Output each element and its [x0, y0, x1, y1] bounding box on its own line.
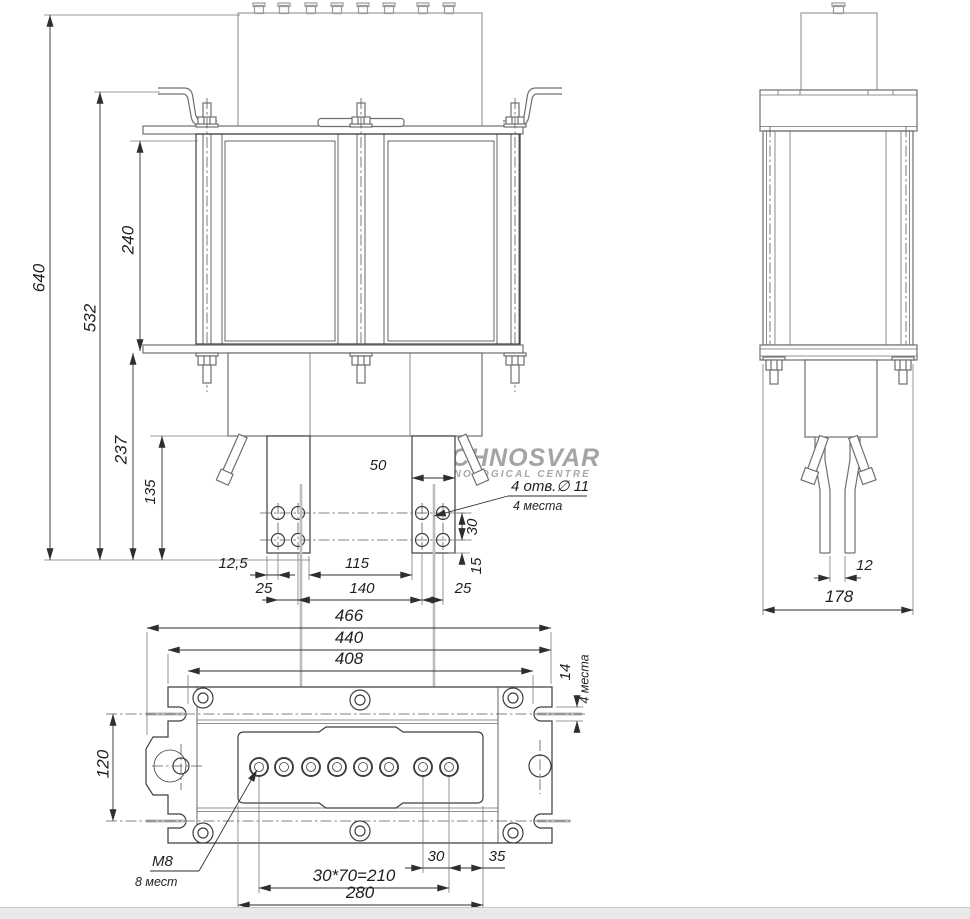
- page-bottom-bar: [0, 907, 970, 919]
- dim-14-note: 4 места: [577, 654, 591, 703]
- bottom-clamp-plate: [143, 345, 523, 353]
- coil-window-left: [225, 141, 335, 341]
- dim-135-label: 135: [142, 479, 159, 505]
- dim-30v-label: 30: [464, 518, 481, 535]
- dim-466-label: 466: [335, 606, 364, 625]
- dim-532-label: 532: [80, 303, 99, 332]
- side-tube-left: [801, 435, 831, 485]
- core-frame: [196, 134, 520, 344]
- dim-178-label: 178: [825, 587, 854, 606]
- dim-30b-label: 30: [428, 848, 445, 865]
- side-body: [763, 131, 913, 345]
- dim-140-label: 140: [349, 580, 375, 597]
- dim-15v-label: 15: [468, 557, 485, 574]
- side-view: [760, 3, 917, 553]
- dim-240-label: 240: [118, 225, 137, 255]
- dim-237-label: 237: [111, 435, 130, 465]
- side-body-lines: [767, 131, 910, 345]
- dim-14-label: 14: [557, 664, 574, 681]
- dim-115-label: 115: [345, 555, 370, 572]
- side-tube-right: [846, 435, 876, 485]
- dim-280-label: 280: [345, 883, 375, 902]
- dim-640-label: 640: [29, 263, 48, 292]
- drawing-canvas: TECHNOSVAR TECHNOLOGICAL CENTRE: [0, 0, 970, 919]
- technical-drawing: TECHNOSVAR TECHNOLOGICAL CENTRE: [0, 0, 970, 919]
- side-coil-block: [805, 360, 877, 437]
- core-limb-lines: [222, 134, 497, 344]
- dim-440-label: 440: [335, 628, 364, 647]
- dim-120-label: 120: [93, 749, 112, 778]
- callout-holes-line1: 4 отв.∅ 11: [511, 478, 589, 495]
- callout-m8-line2: 8 мест: [135, 875, 177, 889]
- dim-12-label: 12: [856, 557, 873, 574]
- tube-left: [216, 433, 249, 485]
- dim-408-label: 408: [335, 649, 364, 668]
- coil-window-right: [388, 141, 494, 341]
- callout-holes-line2: 4 места: [513, 499, 562, 513]
- terminal-stubs: [253, 3, 455, 14]
- dim-50-label: 50: [370, 457, 387, 474]
- dim-35-label: 35: [489, 848, 506, 865]
- bottom-view: [106, 687, 585, 843]
- callout-m8-line1: M8: [152, 853, 173, 870]
- side-top-flange: [760, 90, 917, 131]
- dim-25l-label: 25: [255, 580, 273, 597]
- dim-25r-label: 25: [454, 580, 472, 597]
- dim-12-5-label: 12,5: [218, 555, 248, 572]
- side-terminal-box: [801, 13, 877, 90]
